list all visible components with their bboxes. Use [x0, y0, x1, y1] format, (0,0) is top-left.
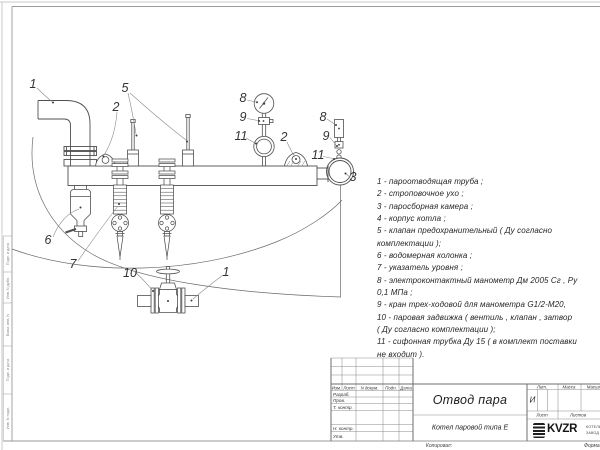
- margin-stamp-label: Взам. инв. N: [6, 313, 10, 335]
- callout-number: 2: [281, 130, 288, 144]
- callout-number: 9: [240, 110, 247, 124]
- tb-col-izm: Изм.: [332, 385, 341, 390]
- drawing-subtitle: Котел паровой типа Е: [432, 425, 508, 432]
- callout-number: 11: [312, 148, 325, 162]
- callout-number: 3: [350, 170, 357, 184]
- callout-number: 2: [113, 100, 120, 114]
- kvzr-logo-caption-1: КОТЕЛЬНЫЙ: [586, 425, 600, 429]
- drawing-sheet: { "sheet": { "footer_copied": "Копировал…: [0, 0, 600, 450]
- tb-col-ndok: N докум.: [361, 385, 379, 390]
- callout-number: 8: [320, 110, 327, 124]
- tb-row-tkontr: Т. контр.: [333, 405, 353, 410]
- callout-number: 11: [235, 129, 248, 143]
- tb-mass-label: Масса: [563, 384, 576, 389]
- drawing-title: Отвод пара: [433, 393, 507, 407]
- kvzr-logo-icon: [533, 423, 545, 438]
- margin-stamp-label: Подп. и дата: [6, 359, 10, 381]
- margin-stamp-label: Подп. и дата: [6, 243, 10, 265]
- callout-layer: 125891128911367101: [0, 0, 600, 450]
- callout-number: 6: [45, 233, 52, 247]
- tb-scale-label: Масштаб: [587, 384, 600, 389]
- margin-stamp-label: Инв. N дубл.: [6, 276, 10, 298]
- tb-sheet-label: Лист: [536, 413, 547, 418]
- kvzr-logo-caption-2: ЗАВОД Р: [586, 431, 600, 435]
- callout-number: 7: [70, 257, 77, 271]
- margin-stamp-label: Инв. N подл.: [6, 406, 10, 428]
- callout-number: 8: [240, 91, 247, 105]
- callout-number: 10: [123, 266, 137, 280]
- tb-sheets-label: Листов: [570, 413, 586, 418]
- tb-row-razrab: Разраб.: [333, 392, 350, 397]
- callout-number: 9: [323, 129, 330, 143]
- tb-row-prov: Пров.: [333, 398, 345, 403]
- callout-number: 1: [223, 265, 230, 279]
- tb-lit-value: И: [530, 395, 536, 404]
- tb-col-list: Лист: [343, 385, 354, 390]
- callout-number: 5: [122, 81, 129, 95]
- tb-col-data: Дата: [400, 385, 412, 390]
- footer-format: Формат: [584, 443, 600, 449]
- callout-number: 1: [30, 77, 37, 91]
- tb-row-utv: Утв.: [333, 434, 343, 439]
- tb-row-nkontr: Н. контр.: [333, 426, 354, 431]
- tb-lit-label: Лит.: [537, 384, 547, 389]
- tb-col-podp: Подп.: [385, 385, 397, 390]
- kvzr-logo-text: KVZR: [547, 423, 577, 435]
- footer-copied: Копировал:: [426, 443, 452, 449]
